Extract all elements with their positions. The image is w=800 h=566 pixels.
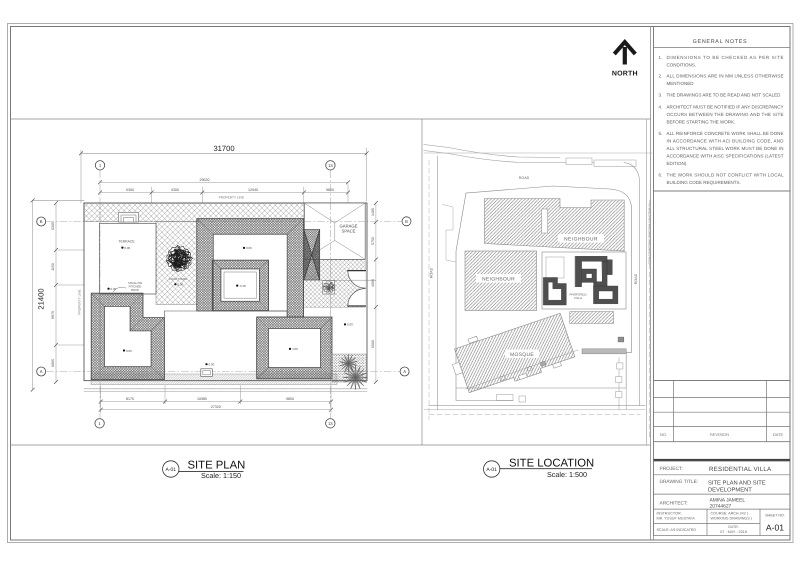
svg-text:A: A	[40, 369, 43, 374]
svg-text:EDITION).: EDITION).	[667, 161, 688, 166]
svg-text:ARCH 242 WORKING DRAWINGS A-01: ARCH 242 WORKING DRAWINGS A-01 SITE PLAN	[648, 204, 651, 265]
svg-text:ARCHITECT MUST BE NOTIFIED IF: ARCHITECT MUST BE NOTIFIED IF ANY DISCRE…	[667, 105, 784, 110]
svg-text:31700: 31700	[213, 144, 234, 153]
svg-text:TERRACE: TERRACE	[118, 240, 135, 244]
svg-text:Scale: 1:150: Scale: 1:150	[201, 471, 241, 480]
svg-text:12940: 12940	[248, 188, 258, 192]
svg-text:10985: 10985	[197, 397, 207, 401]
svg-text:ROOF: ROOF	[131, 288, 140, 292]
svg-text:VILLA: VILLA	[574, 296, 582, 300]
svg-text:13: 13	[328, 421, 333, 426]
svg-text:INSTRUCTOR:: INSTRUCTOR:	[657, 512, 682, 516]
svg-text:ALL REINFORCE CONCRETE WORK SH: ALL REINFORCE CONCRETE WORK SHALL BE DON…	[667, 131, 784, 136]
svg-text:20744627: 20744627	[710, 503, 732, 509]
svg-text:SITE PLAN: SITE PLAN	[188, 460, 246, 472]
svg-text:AMINA JAMEEL: AMINA JAMEEL	[710, 498, 746, 504]
svg-text:6305: 6305	[51, 222, 55, 230]
svg-text:07 - MAY - 2018: 07 - MAY - 2018	[720, 530, 747, 534]
svg-text:SITE LOCATION: SITE LOCATION	[509, 458, 594, 470]
svg-text:IN ACCORDANCE WITH ACI BUILDIN: IN ACCORDANCE WITH ACI BUILDING CODE, AN…	[667, 139, 785, 144]
svg-text:B: B	[405, 219, 408, 224]
svg-text:PROPERTY LINE: PROPERTY LINE	[219, 196, 244, 200]
svg-text:8175: 8175	[126, 397, 134, 401]
svg-text:NORTH: NORTH	[612, 70, 638, 77]
svg-text:1485: 1485	[371, 208, 375, 216]
svg-text:B: B	[40, 219, 43, 224]
svg-text:ROAD: ROAD	[430, 267, 434, 278]
svg-text:0.00: 0.00	[209, 363, 215, 367]
svg-text:SHEET NO.: SHEET NO.	[765, 514, 785, 518]
svg-text:21400: 21400	[37, 288, 46, 309]
svg-text:A-01: A-01	[766, 523, 784, 533]
svg-text:ALL DIMENSIONS ARE IN MM UNLES: ALL DIMENSIONS ARE IN MM UNLESS OTHERWIS…	[667, 74, 784, 79]
svg-text:GENERAL NOTES: GENERAL NOTES	[693, 39, 748, 45]
svg-text:COURSE: ARCH 242 (: COURSE: ARCH 242 (	[711, 512, 749, 516]
svg-text:13: 13	[328, 163, 333, 168]
svg-text:DATE:: DATE:	[728, 525, 739, 529]
svg-text:2.: 2.	[659, 74, 663, 79]
svg-text:SPACE: SPACE	[342, 228, 356, 233]
svg-text:COURTYARD: COURTYARD	[169, 277, 189, 281]
svg-text:6.: 6.	[659, 173, 663, 178]
svg-text:MENTIONED: MENTIONED	[667, 81, 695, 86]
svg-text:0.00: 0.00	[126, 349, 132, 353]
svg-text:-0.05: -0.05	[239, 284, 246, 288]
svg-text:ALL STRUCTURAL STEEL WORK MUST: ALL STRUCTURAL STEEL WORK MUST BE DONE I…	[667, 146, 784, 151]
svg-text:NEIGHBOUR: NEIGHBOUR	[482, 276, 515, 282]
svg-text:THE DRAWINGS ARE TO BE READ AN: THE DRAWINGS ARE TO BE READ AND NOT SCAL…	[667, 93, 782, 98]
svg-text:SCALE: AS INDICATED: SCALE: AS INDICATED	[657, 528, 697, 532]
svg-text:DATE: DATE	[773, 432, 784, 437]
svg-text:NEIGHBOUR: NEIGHBOUR	[564, 236, 598, 242]
svg-text:ROAD: ROAD	[634, 273, 638, 284]
svg-text:6500: 6500	[371, 340, 375, 348]
svg-text:Scale: 1:500: Scale: 1:500	[547, 470, 587, 479]
svg-text:MOSQUE: MOSQUE	[510, 352, 534, 358]
svg-text:3.: 3.	[659, 93, 663, 98]
svg-text:DRAWING TITLE:: DRAWING TITLE:	[660, 479, 699, 485]
svg-text:ACCORDANCE WITH AISC SPECIFICA: ACCORDANCE WITH AISC SPECIFICATIONS (LAT…	[667, 154, 784, 159]
svg-text:1.: 1.	[659, 55, 663, 60]
svg-text:6865: 6865	[51, 359, 55, 367]
svg-text:0.00: 0.00	[246, 246, 252, 250]
svg-text:THE WORK SHOULD NOT CONFLICT W: THE WORK SHOULD NOT CONFLICT WITH LOCAL	[667, 173, 784, 178]
svg-text:9850: 9850	[286, 397, 294, 401]
svg-text:DEVELOPMENT: DEVELOPMENT	[708, 487, 752, 494]
svg-text:6300: 6300	[126, 188, 134, 192]
svg-text:RESIDENTIAL VILLA: RESIDENTIAL VILLA	[709, 466, 772, 473]
svg-text:NO.: NO.	[660, 432, 667, 437]
svg-text:PROJECT:: PROJECT:	[660, 466, 683, 472]
svg-text:29620: 29620	[200, 178, 210, 182]
svg-text:4300: 4300	[171, 188, 179, 192]
svg-text:OCCURS BETWEEN THE DRAWING AND: OCCURS BETWEEN THE DRAWING AND THE SITE	[667, 112, 784, 117]
svg-text:5.: 5.	[659, 131, 663, 136]
svg-text:0.00: 0.00	[177, 283, 183, 287]
svg-text:PROPERTY LINE: PROPERTY LINE	[78, 289, 82, 314]
svg-text:4.00: 4.00	[292, 347, 298, 351]
svg-text:REVISION: REVISION	[710, 432, 729, 437]
svg-text:9970: 9970	[51, 311, 55, 319]
svg-text:27320: 27320	[211, 405, 221, 409]
svg-text:ROAD: ROAD	[519, 176, 530, 180]
svg-text:1150: 1150	[51, 263, 55, 271]
svg-text:SITE PLAN AND SITE: SITE PLAN AND SITE	[708, 479, 766, 486]
svg-text:A-01: A-01	[486, 467, 497, 473]
svg-text:5750: 5750	[371, 237, 375, 245]
svg-text:0.00: 0.00	[124, 246, 130, 250]
svg-text:A: A	[403, 369, 406, 374]
svg-text:BUILDING CODE REQUIREMENTS.: BUILDING CODE REQUIREMENTS.	[667, 180, 741, 185]
svg-text:4.: 4.	[659, 105, 663, 110]
svg-text:MR. YUSUF MUSTAFA: MR. YUSUF MUSTAFA	[657, 517, 696, 521]
svg-text:DIMENSIONS TO BE CHECKED AS PE: DIMENSIONS TO BE CHECKED AS PER SITE	[667, 55, 784, 60]
svg-text:ARCHITECT:: ARCHITECT:	[660, 501, 688, 507]
svg-text:A-01: A-01	[166, 467, 177, 473]
svg-text:WORKING DRAWINGS ): WORKING DRAWINGS )	[711, 517, 752, 521]
svg-text:0.00: 0.00	[347, 323, 353, 327]
svg-text:9850: 9850	[326, 188, 334, 192]
svg-text:BEFORE STARTING THE WORK.: BEFORE STARTING THE WORK.	[667, 120, 736, 125]
svg-text:CONDITIONS.: CONDITIONS.	[667, 63, 697, 68]
